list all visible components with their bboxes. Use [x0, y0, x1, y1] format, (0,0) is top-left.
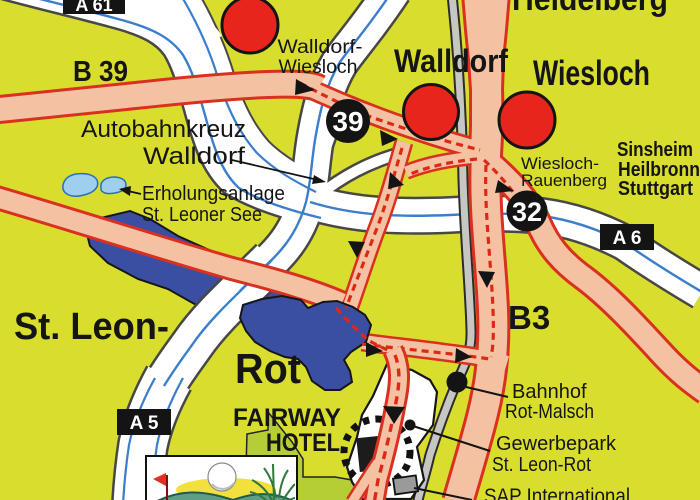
- svg-text:A 6: A 6: [613, 228, 642, 249]
- svg-text:Rot-Malsch: Rot-Malsch: [505, 401, 594, 423]
- svg-text:Sinsheim: Sinsheim: [617, 139, 693, 161]
- svg-text:39: 39: [332, 106, 363, 137]
- svg-text:Walldorf: Walldorf: [143, 143, 245, 170]
- svg-text:St. Leon-: St. Leon-: [14, 306, 169, 348]
- svg-text:FAIRWAY: FAIRWAY: [233, 404, 341, 432]
- svg-text:Wiesloch: Wiesloch: [533, 54, 650, 93]
- svg-text:Bahnhof: Bahnhof: [512, 381, 587, 403]
- svg-text:Stuttgart: Stuttgart: [618, 178, 693, 200]
- svg-text:HOTEL: HOTEL: [266, 429, 340, 457]
- svg-text:St. Leoner See: St. Leoner See: [142, 204, 262, 226]
- svg-text:St. Leon-Rot: St. Leon-Rot: [492, 454, 591, 476]
- svg-text:Walldorf: Walldorf: [394, 43, 508, 79]
- svg-text:B3: B3: [508, 299, 550, 336]
- svg-text:Autobahnkreuz: Autobahnkreuz: [81, 116, 246, 143]
- svg-text:Heidelberg: Heidelberg: [512, 0, 668, 17]
- svg-text:SAP International: SAP International: [484, 485, 630, 500]
- svg-text:Gewerbepark: Gewerbepark: [496, 433, 617, 455]
- svg-text:32: 32: [512, 197, 542, 227]
- svg-text:Wiesloch: Wiesloch: [279, 57, 358, 78]
- svg-text:A 61: A 61: [75, 0, 112, 15]
- svg-text:Rauenberg: Rauenberg: [521, 171, 607, 190]
- svg-text:Erholungsanlage: Erholungsanlage: [142, 183, 285, 205]
- svg-text:A 5: A 5: [130, 413, 159, 434]
- svg-text:Rot: Rot: [235, 345, 301, 392]
- svg-text:Walldorf-: Walldorf-: [278, 37, 363, 58]
- svg-text:B 39: B 39: [73, 56, 128, 88]
